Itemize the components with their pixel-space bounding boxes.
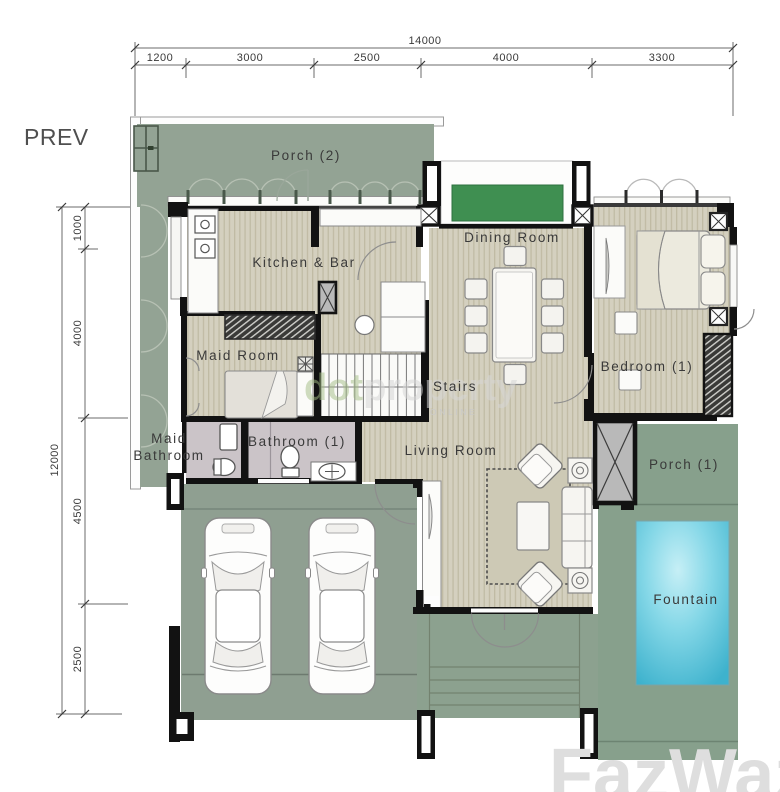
svg-text:Bedroom (1): Bedroom (1) [601, 359, 694, 374]
svg-text:3000: 3000 [237, 52, 263, 64]
svg-text:14000: 14000 [408, 35, 441, 47]
svg-text:Bathroom (1): Bathroom (1) [248, 434, 346, 449]
svg-text:2500: 2500 [72, 646, 84, 672]
svg-text:Dining Room: Dining Room [464, 230, 560, 245]
svg-text:Fountain: Fountain [653, 592, 718, 607]
svg-text:ONLINE: ONLINE [430, 407, 477, 417]
svg-text:Stairs: Stairs [433, 379, 477, 394]
svg-text:Kitchen & Bar: Kitchen & Bar [252, 255, 355, 270]
svg-text:Living Room: Living Room [405, 443, 498, 458]
svg-text:2500: 2500 [354, 52, 380, 64]
svg-text:dotproperty: dotproperty [304, 367, 517, 409]
svg-text:4000: 4000 [493, 52, 519, 64]
svg-text:4500: 4500 [72, 498, 84, 524]
svg-text:Bathroom: Bathroom [133, 448, 204, 463]
svg-text:1200: 1200 [147, 52, 173, 64]
svg-text:Porch (1): Porch (1) [649, 457, 719, 472]
svg-text:3300: 3300 [649, 52, 675, 64]
svg-text:Porch (2): Porch (2) [271, 148, 341, 163]
svg-text:Maid Room: Maid Room [196, 348, 279, 363]
svg-text:Maid: Maid [151, 431, 187, 446]
svg-text:12000: 12000 [49, 443, 61, 476]
svg-text:4000: 4000 [72, 320, 84, 346]
svg-text:PREV: PREV [24, 124, 89, 150]
svg-text:1000: 1000 [72, 215, 84, 241]
svg-text:FazWaz: FazWaz [549, 735, 780, 792]
